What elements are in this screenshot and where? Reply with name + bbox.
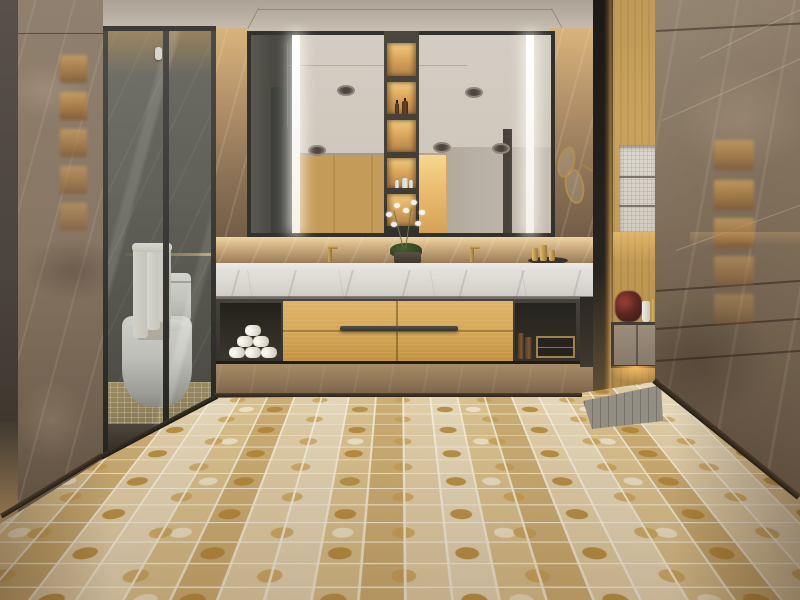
brass-framed-box bbox=[536, 336, 575, 358]
reflection-tray-line-2 bbox=[287, 65, 467, 66]
white-vase bbox=[642, 301, 650, 322]
glass-frame-middle bbox=[163, 26, 169, 460]
amber-niche-reflection bbox=[714, 180, 754, 210]
amber-jar bbox=[518, 333, 524, 359]
ceiling-tray-line bbox=[258, 9, 552, 10]
gold-bottle bbox=[549, 250, 555, 261]
orchid-blossom bbox=[411, 200, 417, 205]
baseboard-back bbox=[214, 393, 582, 397]
towel-roll bbox=[237, 336, 253, 347]
niche-under-glow bbox=[613, 232, 657, 262]
reflected-downlight bbox=[492, 143, 510, 154]
marble-strip-right-of-mirror bbox=[550, 28, 594, 237]
backlit-shelf-column bbox=[384, 31, 419, 255]
floating-cabinet bbox=[611, 322, 660, 368]
shower-enclosure bbox=[103, 26, 216, 460]
reflection-tray-line bbox=[287, 43, 288, 127]
niche-shelf bbox=[619, 176, 657, 178]
white-bottle bbox=[395, 180, 399, 188]
shower-glass bbox=[103, 26, 216, 460]
reflected-downlight bbox=[433, 142, 451, 153]
orchid-blossom bbox=[415, 221, 421, 226]
gold-faucet-right bbox=[470, 246, 474, 262]
glass-frame-top bbox=[103, 26, 216, 31]
mirror-light-strip-right bbox=[526, 35, 534, 233]
orchid-blossom bbox=[394, 203, 400, 208]
flower-arrangement bbox=[615, 291, 642, 322]
orchid-blossom bbox=[391, 222, 397, 227]
shadow-gap-right bbox=[580, 297, 594, 367]
gold-faucet-left bbox=[328, 246, 332, 262]
orchid-blossom bbox=[386, 212, 392, 217]
white-bottle bbox=[409, 180, 413, 188]
reflected-downlight bbox=[465, 87, 483, 98]
orchid-blossom bbox=[419, 210, 425, 215]
amber-niche-reflection bbox=[60, 55, 87, 83]
amber-niche-reflection bbox=[60, 166, 87, 194]
towel-roll bbox=[261, 347, 277, 358]
drawer-handle bbox=[340, 326, 458, 331]
white-bottle bbox=[402, 178, 408, 188]
orchid-blossom bbox=[403, 208, 409, 213]
reflection-lit-doorway bbox=[418, 155, 446, 233]
amber-niche-reflection bbox=[60, 129, 87, 157]
amber-bottle bbox=[402, 101, 408, 114]
bathroom-render bbox=[0, 0, 800, 600]
towel-roll bbox=[245, 325, 261, 336]
backlit-niche bbox=[387, 158, 416, 188]
marble-strip-left-of-mirror bbox=[214, 28, 248, 237]
backlit-niche bbox=[387, 194, 416, 226]
amber-niche-reflection bbox=[714, 294, 754, 324]
right-wall-cove-reflection bbox=[690, 232, 800, 246]
amber-niche-reflection bbox=[60, 203, 87, 231]
towel-roll bbox=[229, 347, 245, 358]
amber-bottle bbox=[395, 103, 399, 114]
backlit-niche bbox=[387, 82, 416, 114]
white-mosaic-niche bbox=[619, 145, 657, 232]
reflection-grey-wall bbox=[447, 147, 551, 233]
left-wall-joint bbox=[18, 33, 103, 34]
glass-frame-left bbox=[103, 26, 108, 460]
amber-niche-reflection bbox=[714, 140, 754, 170]
gold-bottle bbox=[540, 245, 547, 261]
reflected-downlight bbox=[308, 145, 326, 156]
amber-niche-reflection bbox=[714, 256, 754, 286]
amber-niche-reflection bbox=[60, 92, 87, 120]
amber-jar bbox=[525, 337, 532, 359]
countertop-veins bbox=[211, 270, 594, 297]
niche-shelf bbox=[619, 205, 657, 207]
backlit-niche bbox=[387, 120, 416, 152]
gold-bottle bbox=[532, 248, 538, 261]
towel-roll bbox=[253, 336, 269, 347]
reflected-downlight bbox=[337, 85, 355, 96]
marble-countertop bbox=[211, 263, 594, 297]
backlit-niche bbox=[387, 43, 416, 76]
mirror-light-strip-left bbox=[292, 35, 300, 233]
towel-roll bbox=[245, 347, 261, 358]
